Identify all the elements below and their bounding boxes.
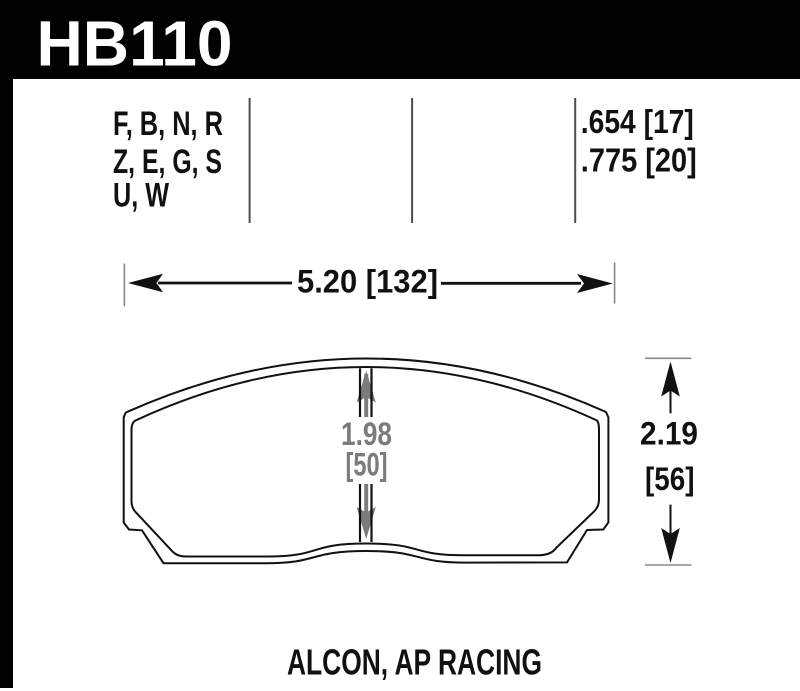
svg-text:HB110: HB110 bbox=[37, 8, 233, 80]
svg-text:.654 [17]: .654 [17] bbox=[581, 103, 694, 140]
svg-text:[50]: [50] bbox=[346, 447, 388, 483]
svg-text:.775 [20]: .775 [20] bbox=[581, 142, 697, 179]
svg-text:2.19: 2.19 bbox=[640, 416, 698, 452]
svg-text:F, B, N, R: F, B, N, R bbox=[113, 105, 223, 143]
svg-text:U, W: U, W bbox=[113, 177, 170, 215]
svg-text:Z, E, G, S: Z, E, G, S bbox=[113, 143, 222, 181]
svg-text:ALCON, AP RACING: ALCON, AP RACING bbox=[287, 642, 542, 683]
svg-text:[56]: [56] bbox=[645, 461, 695, 497]
svg-text:5.20 [132]: 5.20 [132] bbox=[297, 264, 438, 300]
